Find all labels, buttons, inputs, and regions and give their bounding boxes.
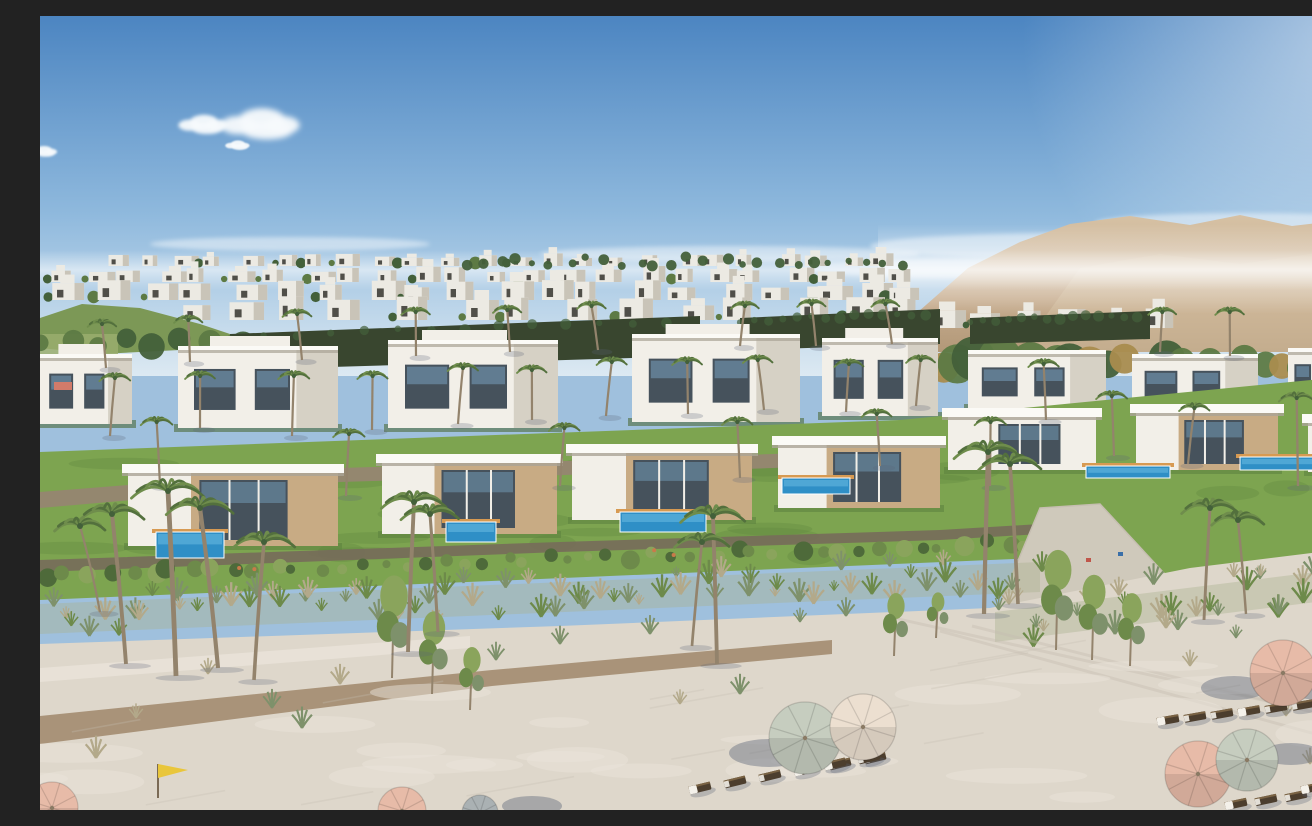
beach-resort-rendering: Aerial architectural rendering of a beac… (40, 16, 1312, 810)
scene-canvas (40, 16, 1312, 810)
